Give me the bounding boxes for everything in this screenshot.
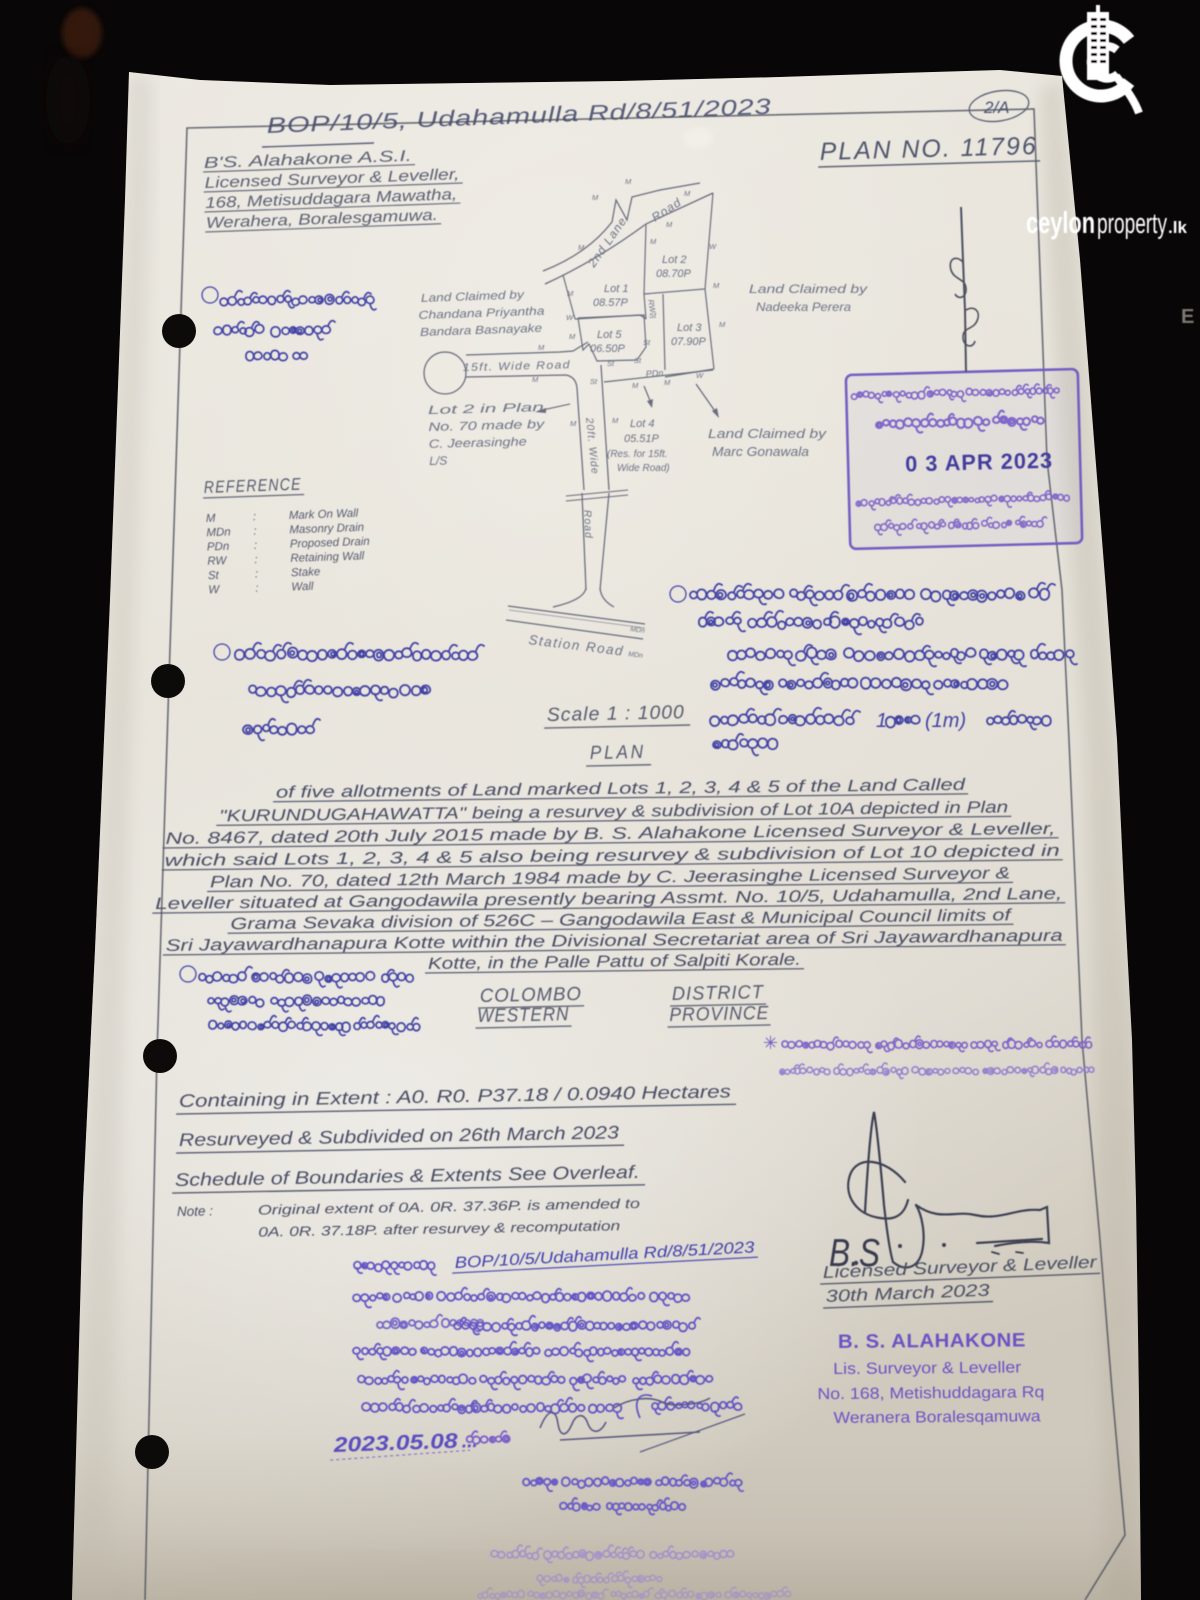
svg-text:W: W bbox=[208, 584, 220, 596]
svg-text:No. 168, Metishuddagara Rq: No. 168, Metishuddagara Rq bbox=[817, 1384, 1044, 1403]
svg-text:M: M bbox=[713, 281, 720, 290]
svg-text:Lot 4: Lot 4 bbox=[630, 418, 654, 430]
svg-text:.lk: .lk bbox=[1168, 218, 1187, 237]
svg-text:C. Jeerasinghe: C. Jeerasinghe bbox=[429, 434, 528, 451]
svg-text:PDn: PDn bbox=[207, 541, 230, 554]
svg-text:M: M bbox=[206, 513, 216, 525]
svg-text:B. S. ALAHAKONE: B. S. ALAHAKONE bbox=[838, 1329, 1026, 1353]
svg-text:E: E bbox=[1181, 306, 1194, 328]
svg-text:Scale 1 : 1000: Scale 1 : 1000 bbox=[547, 702, 685, 726]
svg-text:DISTRICT: DISTRICT bbox=[672, 982, 765, 1005]
svg-text:ceylon: ceylon bbox=[1026, 205, 1095, 240]
svg-text:Road: Road bbox=[581, 510, 595, 540]
svg-text:Marc Gonawala: Marc Gonawala bbox=[712, 445, 809, 459]
svg-text:M: M bbox=[632, 381, 639, 390]
svg-text:Weranera Boralesqamuwa: Weranera Boralesqamuwa bbox=[834, 1408, 1041, 1427]
svg-text::: : bbox=[255, 568, 259, 580]
svg-text:05.51P: 05.51P bbox=[624, 433, 660, 445]
svg-text::: : bbox=[254, 540, 258, 552]
svg-text:Land Claimed by: Land Claimed by bbox=[749, 284, 869, 296]
svg-text:08.57P: 08.57P bbox=[593, 297, 629, 309]
svg-text:M: M bbox=[569, 332, 576, 341]
svg-text:L/S: L/S bbox=[429, 454, 447, 468]
svg-text:Stake: Stake bbox=[291, 566, 321, 579]
svg-text:PROVINCE: PROVINCE bbox=[669, 1003, 769, 1026]
svg-text:Lot 2: Lot 2 bbox=[662, 254, 686, 266]
svg-text:Lis. Surveyor & Leveller: Lis. Surveyor & Leveller bbox=[833, 1359, 1022, 1378]
svg-text:M: M bbox=[684, 189, 691, 198]
svg-text:✳: ✳ bbox=[763, 1033, 778, 1053]
svg-text:W: W bbox=[566, 313, 574, 322]
svg-text:St: St bbox=[643, 338, 651, 347]
svg-text::: : bbox=[255, 583, 259, 595]
svg-text:Mark On Wall: Mark On Wall bbox=[289, 508, 359, 522]
svg-text:Note :: Note : bbox=[177, 1203, 214, 1219]
svg-text:PLAN: PLAN bbox=[590, 742, 646, 764]
svg-text:M: M bbox=[570, 419, 577, 428]
svg-text:St: St bbox=[649, 311, 657, 320]
svg-text:W: W bbox=[696, 371, 704, 380]
svg-text:property: property bbox=[1097, 208, 1167, 240]
svg-text:RW: RW bbox=[207, 555, 228, 568]
svg-text:M: M bbox=[567, 289, 574, 298]
svg-text:Land Claimed by: Land Claimed by bbox=[708, 427, 827, 441]
svg-text:MDn: MDn bbox=[206, 526, 231, 539]
svg-text:M: M bbox=[664, 378, 671, 387]
svg-text:0 3 APR 2023: 0 3 APR 2023 bbox=[905, 448, 1054, 477]
svg-text:Lot 5: Lot 5 bbox=[597, 329, 622, 341]
svg-text:M: M bbox=[532, 375, 539, 384]
svg-text:Lot 3: Lot 3 bbox=[677, 322, 702, 334]
svg-text:07.90P: 07.90P bbox=[671, 336, 707, 348]
svg-text::: : bbox=[253, 525, 257, 537]
svg-text::: : bbox=[254, 554, 258, 566]
svg-text:Lot 1: Lot 1 bbox=[604, 283, 628, 295]
svg-text:REFERENCE: REFERENCE bbox=[203, 475, 302, 497]
svg-text:08.70P: 08.70P bbox=[656, 268, 692, 280]
svg-text:St: St bbox=[590, 377, 598, 386]
svg-text:Nadeeka Perera: Nadeeka Perera bbox=[756, 302, 851, 314]
svg-text:M: M bbox=[650, 237, 657, 246]
svg-text:PDn: PDn bbox=[645, 368, 663, 379]
svg-text:06.50P: 06.50P bbox=[590, 343, 626, 355]
svg-text:St: St bbox=[634, 356, 642, 365]
svg-text:Wide Road): Wide Road) bbox=[617, 463, 670, 474]
svg-text:W: W bbox=[709, 242, 717, 251]
svg-text:(1m): (1m) bbox=[925, 710, 966, 732]
svg-text:M: M bbox=[612, 416, 619, 425]
svg-text:M: M bbox=[625, 177, 632, 186]
svg-text:M: M bbox=[592, 193, 599, 202]
svg-text:2/A: 2/A bbox=[983, 98, 1010, 117]
svg-text:M: M bbox=[719, 320, 726, 329]
svg-text:WESTERN: WESTERN bbox=[477, 1004, 569, 1027]
svg-text:M: M bbox=[578, 243, 585, 252]
svg-text:(Res. for 15ft.: (Res. for 15ft. bbox=[607, 449, 668, 460]
svg-text:St: St bbox=[208, 570, 220, 582]
svg-text:M: M bbox=[538, 343, 545, 352]
svg-text:M: M bbox=[666, 220, 673, 229]
svg-text::: : bbox=[253, 511, 257, 523]
svg-text:St: St bbox=[607, 359, 615, 368]
svg-text:Wall: Wall bbox=[291, 581, 314, 594]
